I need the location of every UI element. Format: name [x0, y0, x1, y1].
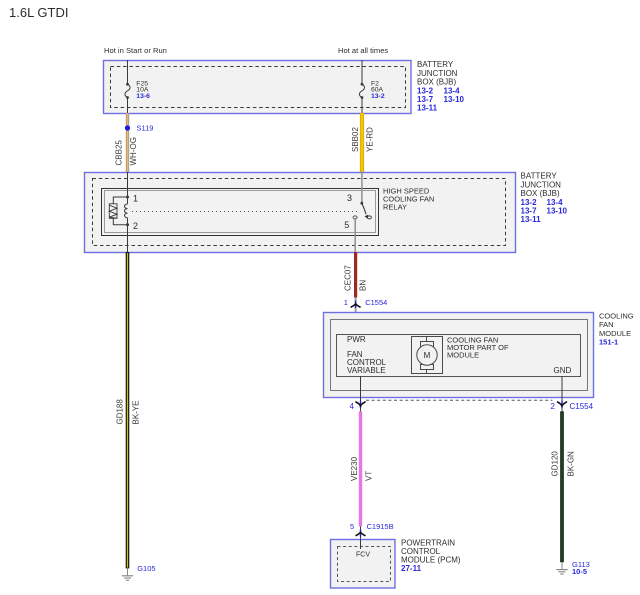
svg-text:27-11: 27-11	[401, 564, 422, 573]
svg-text:RELAY: RELAY	[383, 202, 407, 211]
svg-text:JUNCTION: JUNCTION	[417, 69, 458, 78]
svg-text:MODULE: MODULE	[599, 329, 631, 338]
svg-text:GD188: GD188	[116, 399, 125, 425]
svg-text:C1915B: C1915B	[367, 522, 394, 531]
svg-text:2: 2	[133, 221, 138, 231]
svg-text:JUNCTION: JUNCTION	[521, 180, 562, 189]
svg-text:3: 3	[347, 193, 352, 203]
svg-text:BATTERY: BATTERY	[417, 60, 454, 69]
svg-text:VT: VT	[365, 471, 374, 481]
svg-text:MODULE: MODULE	[447, 351, 479, 360]
svg-text:5: 5	[344, 220, 349, 230]
svg-text:G105: G105	[137, 564, 155, 573]
svg-text:FAN: FAN	[599, 320, 614, 329]
svg-text:4: 4	[350, 402, 355, 411]
svg-text:13-10: 13-10	[444, 95, 465, 104]
svg-text:2: 2	[551, 402, 556, 411]
svg-text:13-7: 13-7	[521, 207, 538, 216]
svg-text:Hot in Start or Run: Hot in Start or Run	[104, 46, 167, 55]
svg-text:13-11: 13-11	[521, 215, 542, 224]
svg-text:5: 5	[350, 522, 354, 531]
svg-text:13-11: 13-11	[417, 104, 438, 113]
svg-text:GND: GND	[554, 366, 572, 375]
svg-text:1: 1	[344, 298, 348, 307]
svg-text:13-2: 13-2	[371, 93, 385, 100]
svg-text:CEC07: CEC07	[343, 265, 352, 291]
svg-text:13-2: 13-2	[521, 198, 538, 207]
svg-text:BK-YE: BK-YE	[131, 400, 140, 424]
svg-text:VE230: VE230	[350, 456, 359, 481]
svg-text:M: M	[424, 351, 431, 360]
svg-text:13-7: 13-7	[417, 95, 434, 104]
svg-text:YE-RD: YE-RD	[365, 127, 374, 152]
svg-text:BK-GN: BK-GN	[566, 451, 575, 477]
svg-text:VARIABLE: VARIABLE	[347, 366, 386, 375]
svg-text:COOLING: COOLING	[599, 311, 634, 320]
svg-text:WH-OG: WH-OG	[129, 137, 138, 165]
svg-text:GD120: GD120	[551, 451, 560, 477]
svg-text:13-2: 13-2	[417, 86, 434, 95]
svg-text:S119: S119	[137, 124, 154, 133]
svg-text:1: 1	[133, 193, 138, 203]
svg-text:BATTERY: BATTERY	[521, 172, 558, 181]
svg-text:13-4: 13-4	[444, 86, 461, 95]
svg-text:FCV: FCV	[356, 551, 370, 558]
svg-text:SBB02: SBB02	[351, 127, 360, 152]
svg-text:1.6L GTDI: 1.6L GTDI	[9, 5, 68, 20]
svg-text:10-5: 10-5	[572, 567, 587, 576]
svg-text:13-4: 13-4	[547, 198, 564, 207]
svg-text:BN: BN	[358, 280, 367, 291]
svg-text:13-10: 13-10	[547, 207, 568, 216]
svg-text:Hot at all times: Hot at all times	[338, 46, 388, 55]
svg-text:CBB25: CBB25	[114, 140, 123, 166]
svg-text:PWR: PWR	[347, 335, 366, 344]
svg-text:C1554: C1554	[365, 298, 387, 307]
svg-text:BOX (BJB): BOX (BJB)	[417, 78, 456, 87]
svg-text:151-1: 151-1	[599, 338, 618, 347]
svg-text:13-6: 13-6	[136, 93, 150, 100]
svg-text:BOX (BJB): BOX (BJB)	[521, 189, 560, 198]
svg-text:C1554: C1554	[570, 402, 594, 411]
